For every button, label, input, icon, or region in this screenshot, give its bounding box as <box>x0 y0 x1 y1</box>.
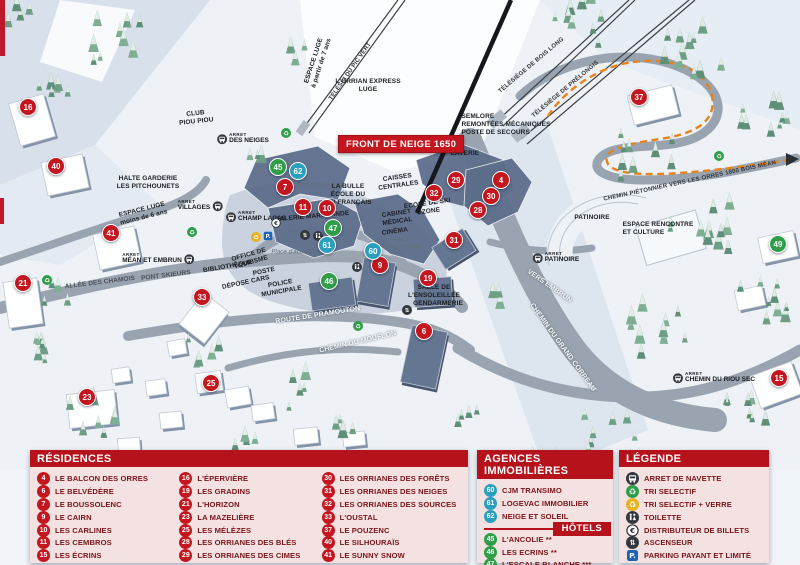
svg-text:⇅: ⇅ <box>303 232 308 239</box>
residence-row: 19LES GRADINS <box>179 485 321 498</box>
legende-label: ARRET DE NAVETTE <box>644 474 721 483</box>
map-label-patinoire: PATINOIRE <box>574 214 609 222</box>
residence-number: 23 <box>179 511 192 524</box>
legende-row: ARRET DE NAVETTE <box>626 472 765 485</box>
residence-number: 31 <box>322 485 335 498</box>
map-label-t-l-si-ge-de-pr-longis: TÉLÉSIÈGE DE PRÉLONGIS <box>531 60 601 120</box>
svg-text:♻: ♻ <box>629 499 637 509</box>
residence-label: LES CEMBROS <box>55 538 112 547</box>
residence-label: LES ORRIANES DES NEIGES <box>340 487 448 496</box>
map-label-halte-garderie-les-pitchounets: HALTE GARDERIE LES PITCHOUNETS <box>117 175 180 191</box>
residence-row: 11LES CEMBROS <box>37 536 179 549</box>
wc-icon <box>626 511 639 524</box>
residence-row: 28LES ORRIANES DES BLÉS <box>179 536 321 549</box>
parking-icon: P. <box>626 549 639 562</box>
map-label-l-orrian-express-luge: L'ORRIAN EXPRESS LUGE <box>335 78 400 94</box>
svg-text:♻: ♻ <box>629 486 637 496</box>
map-label-espace-luge-partir-de-7-ans: ESPACE LUGE à partir de 7 ans <box>302 35 333 89</box>
map-marker-6[interactable]: 6 <box>415 322 433 340</box>
map-marker-10[interactable]: 10 <box>318 199 336 217</box>
map-marker-4[interactable]: 4 <box>492 171 510 189</box>
residence-label: LES ORRIANES DES CIMES <box>197 551 300 560</box>
svg-text:♻: ♻ <box>253 233 259 241</box>
residence-row: 16L'ÉPERVIÈRE <box>179 472 321 485</box>
residence-row: 21L'HORIZON <box>179 498 321 511</box>
bus-stop-name: DES NEIGES <box>229 138 269 145</box>
residence-row: 6LE BELVÉDÈRE <box>37 485 179 498</box>
residence-number: 40 <box>322 536 335 549</box>
svg-text:€: € <box>273 221 278 227</box>
residence-label: LES MÉLÈZES <box>197 526 251 535</box>
bus-icon <box>533 253 543 263</box>
hotel-number: 47 <box>484 558 497 565</box>
residence-label: LE SUNNY SNOW <box>340 551 405 560</box>
map-label-chemin-pi-tonnier-vers-les-orres-1800-bo: CHEMIN PIÉTONNIER VERS LES ORRES 1800 BO… <box>603 160 777 204</box>
residence-label: LE CAIRN <box>55 513 92 522</box>
map-marker-15[interactable]: 15 <box>770 369 788 387</box>
agences-panel: AGENCES IMMOBILIÈRES 60CJM TRANSIMO61LOG… <box>477 450 613 563</box>
residences-panel: RÉSIDENCES 4LE BALCON DES ORRES6LE BELVÉ… <box>30 450 468 563</box>
residence-row: 33L'OUSTAL <box>322 511 464 524</box>
map-label-caisses-centrales: CAISSES CENTRALES <box>377 171 419 192</box>
map-marker-45[interactable]: 45 <box>269 158 287 176</box>
map-label-place-d-accueil: Place d'accueil <box>271 249 312 256</box>
residence-label: LE BALCON DES ORRES <box>55 474 148 483</box>
map-label-espace-rencontre-et-culture: ESPACE RENCONTRE ET CULTURE <box>623 221 694 237</box>
residence-row: 15LES ÉCRINS <box>37 549 179 562</box>
residence-number: 19 <box>179 485 192 498</box>
residence-number: 37 <box>322 524 335 537</box>
hotel-label: LES ECRINS ** <box>502 548 557 557</box>
hotel-number: 46 <box>484 546 497 559</box>
residence-row: 23LA MAZELIÈRE <box>179 511 321 524</box>
residence-label: LES ORRIANES DES FORÊTS <box>340 474 450 483</box>
legende-row: P.PARKING PAYANT ET LIMITÉ <box>626 549 765 562</box>
bus-stop-name: MÉAN ET EMBRUN <box>122 258 182 265</box>
agence-label: CJM TRANSIMO <box>502 486 562 495</box>
map-label-biblioth-que: BIBLIOTHÈQUE <box>203 259 254 276</box>
residence-number: 7 <box>37 498 50 511</box>
map-marker-41[interactable]: 41 <box>102 224 120 242</box>
residence-row: 25LES MÉLÈZES <box>179 524 321 537</box>
residence-row: 32LES ORRIANES DES SOURCES <box>322 498 464 511</box>
residence-number: 28 <box>179 536 192 549</box>
elevator-icon: ⇅ <box>626 536 639 549</box>
residence-label: LES GRADINS <box>197 487 250 496</box>
map-marker-31[interactable]: 31 <box>445 231 463 249</box>
map-label-semlore-remont-es-m-caniques-poste-de-se: SEMLORE REMONTÉES MÉCANIQUES POSTE DE SE… <box>461 113 550 137</box>
residence-label: LES ÉCRINS <box>55 551 102 560</box>
svg-text:♻: ♻ <box>355 322 361 330</box>
legende-title: LÉGENDE <box>619 450 769 467</box>
bus-stop-name: VILLAGES <box>178 205 211 212</box>
residences-column-1: 4LE BALCON DES ORRES6LE BELVÉDÈRE7LE BOU… <box>37 472 179 562</box>
agence-number: 61 <box>484 497 497 510</box>
residence-label: L'OUSTAL <box>340 513 378 522</box>
map-label-pont-skieurs: PONT SKIEURS <box>141 269 192 283</box>
bus-icon <box>212 201 222 211</box>
residence-number: 33 <box>322 511 335 524</box>
residence-label: LE BELVÉDÈRE <box>55 487 114 496</box>
residence-number: 15 <box>37 549 50 562</box>
map-marker-32[interactable]: 32 <box>425 184 443 202</box>
residence-number: 4 <box>37 472 50 485</box>
map-marker-28[interactable]: 28 <box>469 201 487 219</box>
residence-label: L'ÉPERVIÈRE <box>197 474 248 483</box>
map-marker-19[interactable]: 19 <box>419 269 437 287</box>
map-marker-30[interactable]: 30 <box>482 187 500 205</box>
svg-text:€: € <box>629 525 635 534</box>
residence-label: LES ORRIANES DES BLÉS <box>197 538 296 547</box>
elevator-icon: ⇅ <box>300 230 310 240</box>
svg-text:⇅: ⇅ <box>630 538 636 547</box>
residence-row: 29LES ORRIANES DES CIMES <box>179 549 321 562</box>
legende-row: TOILETTE <box>626 511 765 524</box>
legende-row: ⇅ASCENSEUR <box>626 536 765 549</box>
map-marker-61[interactable]: 61 <box>318 236 336 254</box>
legende-row: €DISTRIBUTEUR DE BILLETS <box>626 524 765 537</box>
map-marker-23[interactable]: 23 <box>78 388 96 406</box>
legende-panel: LÉGENDE ARRET DE NAVETTE♻TRI SELECTIF♻TR… <box>619 450 769 563</box>
residence-row: 9LE CAIRN <box>37 511 179 524</box>
svg-text:P.: P. <box>265 234 270 240</box>
residence-row: 10LES CARLINES <box>37 524 179 537</box>
residence-label: L'HORIZON <box>197 500 239 509</box>
map-marker-46[interactable]: 46 <box>320 272 338 290</box>
bus-icon <box>184 254 194 264</box>
map-label-gendarmerie: GENDARMERIE <box>413 300 463 308</box>
residence-label: LE POUZENC <box>340 526 390 535</box>
hotel-number: 45 <box>484 533 497 546</box>
residence-label: LES CARLINES <box>55 526 112 535</box>
agence-row: 60CJM TRANSIMO <box>484 484 609 497</box>
recycle-green-icon: ♻ <box>187 227 197 237</box>
map-label-club-piou-piou: CLUB PIOU PIOU <box>178 108 214 127</box>
svg-text:♻: ♻ <box>44 276 50 284</box>
residence-number: 11 <box>37 536 50 549</box>
residence-label: LES ORRIANES DES SOURCES <box>340 500 457 509</box>
recycle-yellow-icon: ♻ <box>251 232 261 242</box>
recycle-green-icon: ♻ <box>626 485 639 498</box>
wc-icon <box>352 262 362 272</box>
bus-stop-des-neiges: ARRETDES NEIGES <box>217 133 269 145</box>
recycle-green-icon: ♻ <box>281 128 291 138</box>
map-label-place-mile-hodoul: Place Émile Hodoul <box>384 238 421 253</box>
bus-icon <box>226 212 236 222</box>
residence-number: 32 <box>322 498 335 511</box>
map-label-chemin-du-grand-correau: CHEMIN DU GRAND CORREAU <box>527 302 597 394</box>
map-label-chemin-du-mouflon: CHEMIN DU MOUFLON <box>319 330 398 356</box>
residence-number: 6 <box>37 485 50 498</box>
hotel-row: 47L'ESCALE BLANCHE *** <box>484 558 609 565</box>
front-de-neige-banner: FRONT DE NEIGE 1650 <box>338 135 464 153</box>
residence-row: 41LE SUNNY SNOW <box>322 549 464 562</box>
svg-text:♻: ♻ <box>716 152 722 160</box>
residence-number: 16 <box>179 472 192 485</box>
hotel-label: L'ANCOLIE ** <box>502 535 552 544</box>
legende-label: DISTRIBUTEUR DE BILLETS <box>644 526 749 535</box>
residences-column-2: 16L'ÉPERVIÈRE19LES GRADINS21L'HORIZON23L… <box>179 472 321 562</box>
map-marker-37[interactable]: 37 <box>630 88 648 106</box>
recycle-yellow-icon: ♻ <box>626 498 639 511</box>
svg-text:⇅: ⇅ <box>405 307 410 314</box>
map-label-t-l-si-ge-de-bois-long: TÉLÉSIÈGE DE BOIS LONG <box>498 36 567 95</box>
recycle-green-icon: ♻ <box>714 151 724 161</box>
map-marker-25[interactable]: 25 <box>202 374 220 392</box>
map-label-route-de-pramouton: ROUTE DE PRAMOUTON <box>275 305 361 327</box>
bus-stop-chemin-du-riou-sec: ARRETCHEMIN DU RIOU SEC <box>673 372 755 384</box>
map-label-cin-ma: CINÉMA <box>381 226 408 237</box>
euro-icon: € <box>626 524 639 537</box>
bus-stop-villages: ARRETVILLAGES <box>178 200 223 212</box>
bus-stop-name: CHEMIN DU RIOU SEC <box>685 377 755 384</box>
map-marker-47[interactable]: 47 <box>324 219 342 237</box>
legende-row: ♻TRI SELECTIF + VERRE <box>626 498 765 511</box>
agence-number: 60 <box>484 484 497 497</box>
residence-number: 25 <box>179 524 192 537</box>
recycle-green-icon: ♻ <box>353 321 363 331</box>
map-marker-60[interactable]: 60 <box>364 242 382 260</box>
residence-label: LE SILHOURAÏS <box>340 538 400 547</box>
bus-stop-name: PATINOIRE <box>545 257 579 264</box>
map-label-espace-luge-moins-de-6-ans: ESPACE LUGE moins de 6 ans <box>118 200 169 227</box>
agence-label: LOGEVAC IMMOBILIER <box>502 499 588 508</box>
legende-row: ♻TRI SELECTIF <box>626 485 765 498</box>
bus-icon <box>217 134 227 144</box>
euro-icon: € <box>271 218 281 228</box>
residence-row: 7LE BOUSSOLENC <box>37 498 179 511</box>
map-marker-21[interactable]: 21 <box>14 274 32 292</box>
legende-label: PARKING PAYANT ET LIMITÉ <box>644 551 751 560</box>
residence-number: 30 <box>322 472 335 485</box>
residences-column-3: 30LES ORRIANES DES FORÊTS31LES ORRIANES … <box>322 472 464 562</box>
agence-number: 62 <box>484 510 497 523</box>
residence-number: 9 <box>37 511 50 524</box>
residence-row: 30LES ORRIANES DES FORÊTS <box>322 472 464 485</box>
bus-stop-m-an-et-embrun: ARRETMÉAN ET EMBRUN <box>122 253 194 265</box>
hotel-label: L'ESCALE BLANCHE *** <box>502 560 591 565</box>
parking-icon: P. <box>263 231 273 241</box>
agences-title: AGENCES IMMOBILIÈRES <box>477 450 613 479</box>
residence-number: 29 <box>179 549 192 562</box>
map-marker-11[interactable]: 11 <box>294 198 312 216</box>
bus-stop-patinoire: ARRETPATINOIRE <box>533 252 579 264</box>
map-marker-62[interactable]: 62 <box>289 162 307 180</box>
residence-number: 10 <box>37 524 50 537</box>
residence-row: 37LE POUZENC <box>322 524 464 537</box>
residence-label: LA MAZELIÈRE <box>197 513 254 522</box>
legende-label: TRI SELECTIF <box>644 487 696 496</box>
elevator-icon: ⇅ <box>402 305 412 315</box>
residence-label: LE BOUSSOLENC <box>55 500 122 509</box>
legende-label: TRI SELECTIF + VERRE <box>644 500 732 509</box>
agence-label: NEIGE ET SOLEIL <box>502 512 568 521</box>
residence-number: 21 <box>179 498 192 511</box>
residence-row: 4LE BALCON DES ORRES <box>37 472 179 485</box>
map-marker-49[interactable]: 49 <box>769 235 787 253</box>
resort-map: ESPACE LUGE à partir de 7 ansTÉLÉSKI DU … <box>0 0 800 565</box>
map-marker-16[interactable]: 16 <box>19 98 37 116</box>
svg-text:♻: ♻ <box>283 129 289 137</box>
svg-text:♻: ♻ <box>189 228 195 236</box>
residence-number: 41 <box>322 549 335 562</box>
legende-label: ASCENSEUR <box>644 538 693 547</box>
map-marker-29[interactable]: 29 <box>447 171 465 189</box>
map-label-all-e-des-chamois: ALLÉE DES CHAMOIS <box>64 275 135 291</box>
map-label-vers-embrun: VERS EMBRUN <box>525 268 573 305</box>
legende-label: TOILETTE <box>644 513 681 522</box>
recycle-green-icon: ♻ <box>42 275 52 285</box>
residences-title: RÉSIDENCES <box>30 450 468 467</box>
map-marker-7[interactable]: 7 <box>276 178 294 196</box>
map-label-salle-de-l-ensoleill-e: SALLE DE L'ENSOLEILLÉE <box>408 284 460 300</box>
map-marker-33[interactable]: 33 <box>193 288 211 306</box>
residence-row: 40LE SILHOURAÏS <box>322 536 464 549</box>
hotels-title: HÔTELS <box>553 522 611 536</box>
hotels-divider: HÔTELS <box>484 528 609 530</box>
bus-icon <box>673 373 683 383</box>
agence-row: 61LOGEVAC IMMOBILIER <box>484 497 609 510</box>
hotel-row: 46LES ECRINS ** <box>484 546 609 559</box>
svg-text:P.: P. <box>629 552 636 561</box>
residence-row: 31LES ORRIANES DES NEIGES <box>322 485 464 498</box>
bus-icon <box>626 472 639 485</box>
map-marker-40[interactable]: 40 <box>47 157 65 175</box>
